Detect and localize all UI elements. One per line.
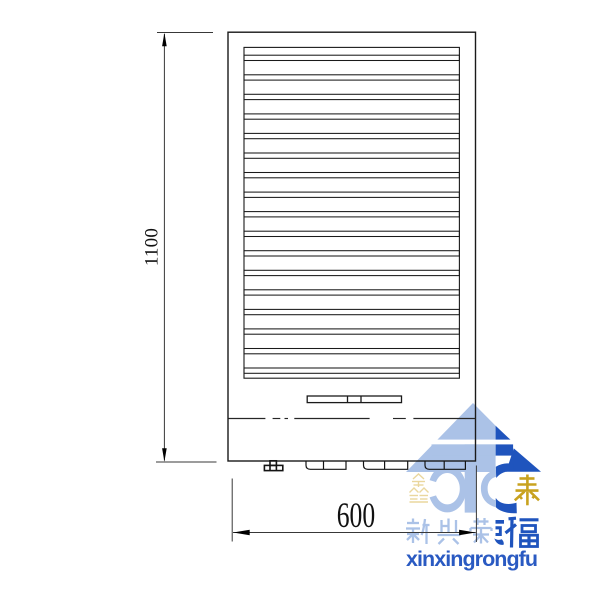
svg-text:1100: 1100 bbox=[141, 228, 162, 266]
svg-text:xinxingrongfu: xinxingrongfu bbox=[406, 547, 538, 571]
svg-text:600: 600 bbox=[337, 495, 375, 535]
